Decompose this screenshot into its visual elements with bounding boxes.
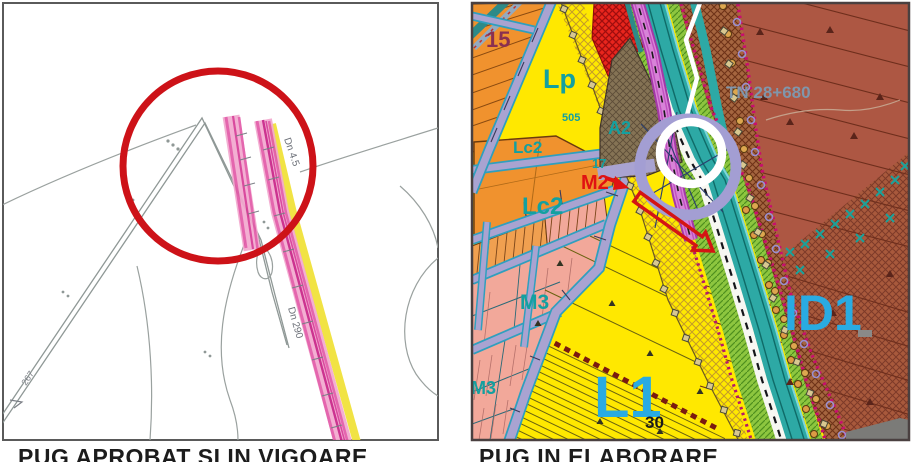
svg-text:M2: M2 [581, 172, 609, 194]
svg-text:PUG IN ELABORARE: PUG IN ELABORARE [479, 444, 718, 462]
svg-text:Lp: Lp [543, 64, 576, 94]
svg-text:PUG APROBAT SI IN VIGOARE: PUG APROBAT SI IN VIGOARE [18, 444, 368, 462]
svg-text:30: 30 [645, 413, 664, 432]
svg-text:Lc2: Lc2 [522, 193, 563, 220]
svg-text:17: 17 [592, 156, 606, 171]
svg-text:Lc2: Lc2 [513, 138, 542, 157]
svg-text:M3: M3 [520, 291, 549, 314]
svg-text:M3: M3 [471, 378, 496, 398]
svg-text:15: 15 [486, 27, 510, 52]
svg-text:A2: A2 [608, 118, 631, 138]
svg-text:505: 505 [562, 112, 580, 124]
svg-text:TN 28+680: TN 28+680 [726, 83, 811, 102]
svg-text:ID1: ID1 [784, 285, 862, 341]
